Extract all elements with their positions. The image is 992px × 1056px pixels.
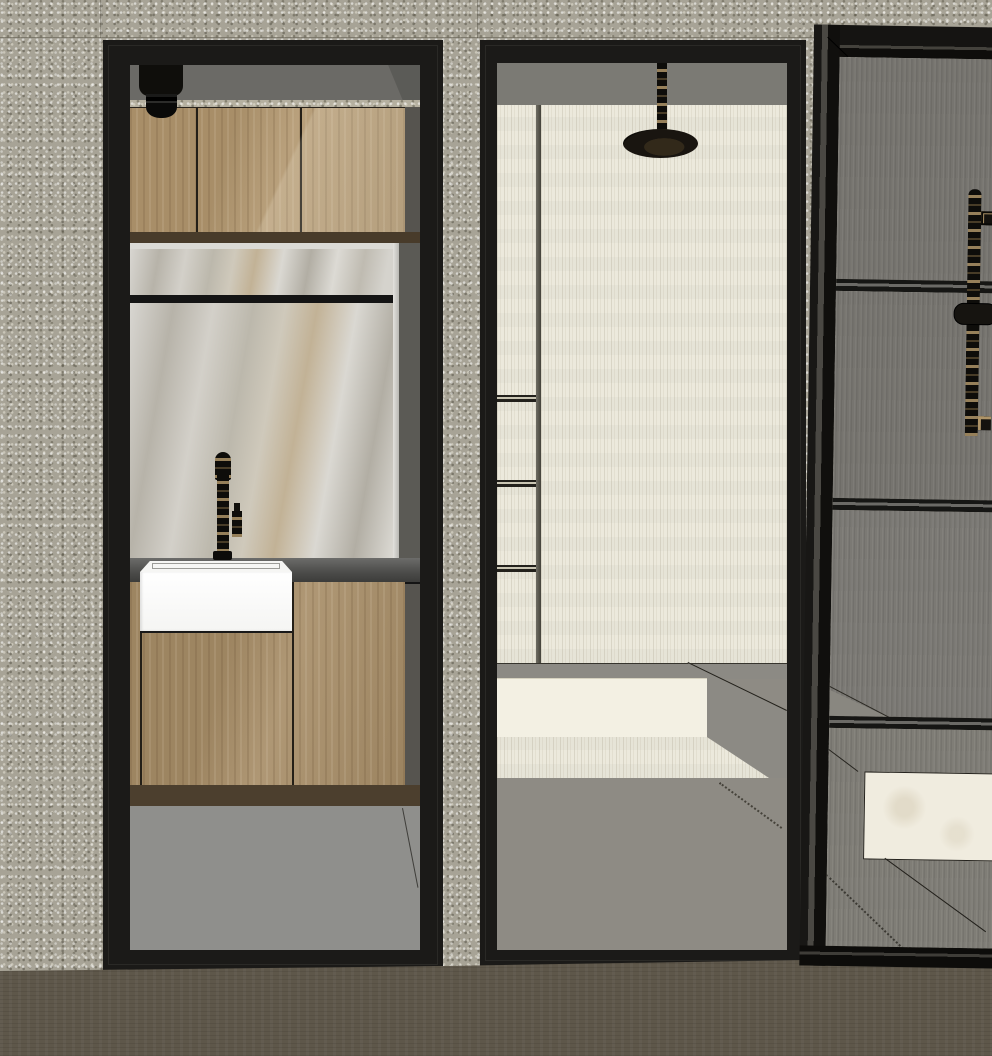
rain-shower-head: [623, 129, 698, 158]
shower-floor: [497, 778, 787, 950]
niche-shelf-2: [497, 480, 536, 487]
faucet-shaft: [217, 475, 229, 559]
upper-cabinets: [130, 107, 405, 235]
shower-back-wall: [541, 105, 787, 663]
marble-side-shadow: [399, 243, 420, 558]
vanity-doorway: [103, 40, 443, 970]
marble-bench: [863, 771, 992, 861]
glass-pane-3: [829, 510, 992, 719]
wall-seam-vertical-left: [100, 0, 102, 38]
shower-niche: [497, 105, 536, 663]
vanity-toe-band: [130, 785, 420, 806]
hidden-line-below-bench: [826, 874, 910, 949]
wall-seam-vertical-right: [477, 0, 479, 38]
niche-shelf-1: [497, 395, 536, 402]
wall-seam-horizontal: [0, 37, 822, 39]
faucet-base: [213, 551, 232, 560]
sink-rim: [140, 561, 292, 572]
sink-basin-edge: [152, 563, 280, 569]
glass-top-frame: [814, 25, 992, 60]
platform-face-smooth: [497, 678, 707, 738]
splashback-upper-band: [130, 249, 393, 295]
platform-top-band: [497, 663, 787, 679]
slider-top-bracket: [981, 211, 992, 225]
niche-shelf-3: [497, 565, 536, 572]
under-vanity-wall: [130, 806, 420, 950]
shower-arm: [657, 63, 667, 131]
glass-pane-4: [826, 728, 992, 949]
under-vanity-corner-line: [402, 808, 418, 888]
render-stage: [0, 0, 992, 1056]
slider-handle: [953, 303, 992, 326]
black-shelf-rail: [130, 295, 393, 303]
concrete-pillar: [443, 40, 480, 966]
ceiling-spotlight: [139, 65, 183, 96]
glass-bottom-rail: [799, 945, 992, 968]
vanity-seam-2: [292, 582, 294, 785]
ceiling-spotlight-neck: [146, 94, 177, 118]
marble-splashback: [130, 303, 393, 558]
glass-panes: [826, 57, 992, 949]
bench-back-edge: [828, 749, 858, 772]
glass-partition: [799, 25, 992, 969]
upper-cabinet-sheen: [130, 108, 405, 233]
shower-doorway: [480, 40, 806, 966]
slider-bottom-bracket: [978, 416, 991, 430]
faucet-handle: [232, 511, 242, 537]
vanity-interior: [130, 65, 420, 950]
shower-bulkhead: [497, 63, 787, 106]
shower-interior: [497, 63, 787, 950]
floor-edge-below-bench: [884, 858, 986, 932]
sink-front: [140, 572, 292, 633]
